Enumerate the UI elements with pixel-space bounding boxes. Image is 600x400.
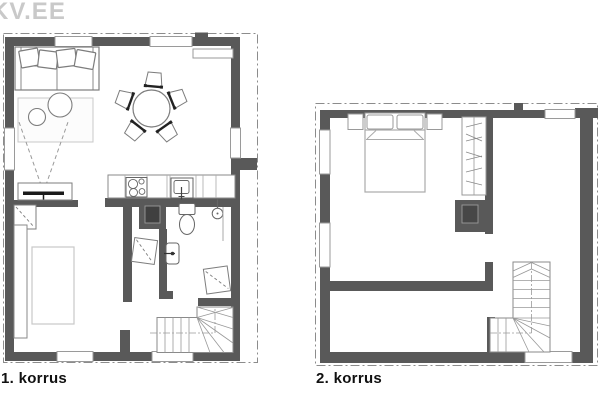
dining-table — [133, 90, 170, 127]
double-bed — [348, 113, 442, 192]
nightstand-right — [427, 114, 442, 130]
tv-screen — [23, 192, 64, 196]
wardrobe-2 — [462, 117, 486, 195]
exterior-walls-2 — [320, 103, 598, 363]
pillow-right — [397, 115, 423, 129]
stairs-2 — [490, 262, 550, 352]
toilet — [179, 204, 195, 235]
cabinet-hall — [203, 266, 230, 294]
chimney-fireplace — [455, 200, 493, 232]
bed-1 — [32, 247, 74, 324]
stairs-1 — [150, 307, 233, 353]
floorplan-1 — [4, 33, 258, 363]
dining-set — [114, 72, 188, 144]
kitchen-sink — [171, 178, 193, 200]
floor-2-label: 2. korrus — [316, 370, 382, 387]
nightstand-left — [348, 114, 363, 130]
cooktop — [126, 178, 147, 198]
sauna-stove — [139, 200, 166, 229]
floorplan-drawing — [0, 0, 600, 400]
cabinet-bath-left — [131, 238, 157, 265]
sofa — [15, 47, 99, 90]
floorplan-2 — [316, 103, 599, 366]
wardrobe-1 — [14, 225, 27, 338]
pillow-left — [367, 115, 393, 129]
floor-1-label: 1. korrus — [1, 370, 67, 387]
washbasin — [164, 243, 179, 264]
floorplan-page: KV.EE — [0, 0, 600, 400]
plot-boundary-2 — [316, 104, 598, 366]
